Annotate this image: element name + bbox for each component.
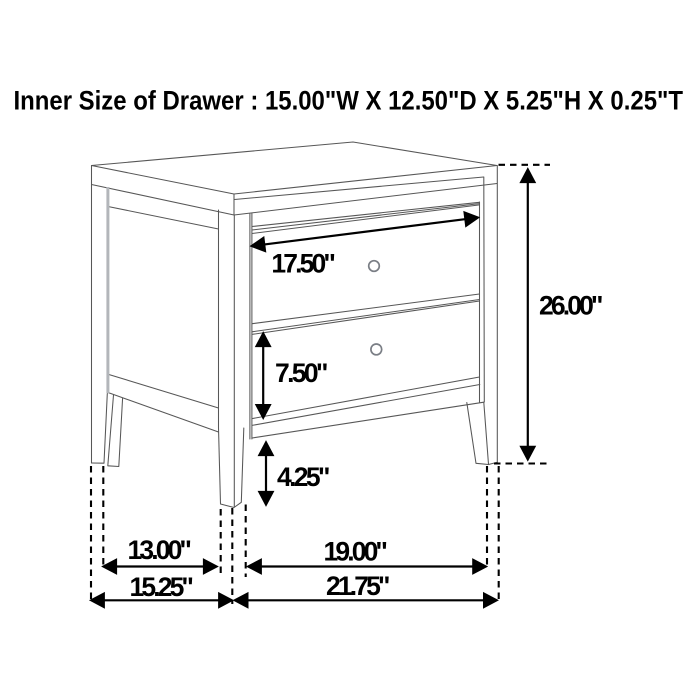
svg-text:13.00": 13.00": [128, 535, 193, 565]
svg-text:7.50": 7.50": [275, 358, 329, 388]
svg-text:Inner Size of Drawer : 15.00"W: Inner Size of Drawer : 15.00"W X 12.50"D…: [14, 86, 684, 116]
svg-text:26.00": 26.00": [539, 291, 604, 321]
svg-text:21.75": 21.75": [326, 571, 391, 601]
svg-text:17.50": 17.50": [271, 249, 336, 279]
svg-text:4.25": 4.25": [277, 462, 331, 492]
svg-text:19.00": 19.00": [324, 537, 389, 567]
svg-text:15.25": 15.25": [130, 572, 195, 602]
